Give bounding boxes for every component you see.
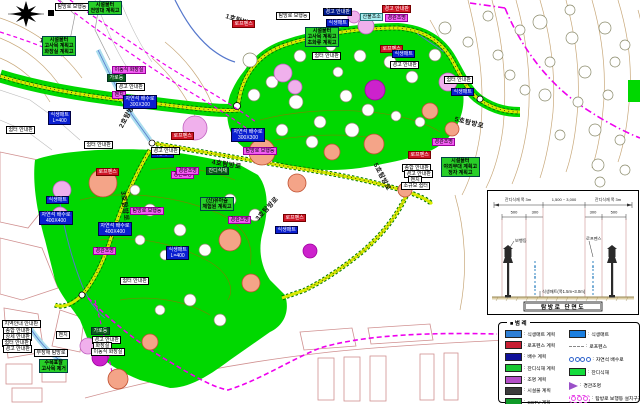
svg-text:식생매트(폭1.5m~3.0m): 식생매트(폭1.5m~3.0m)	[542, 288, 586, 295]
legend-separator: :	[524, 354, 525, 359]
legend-item-label: 식생매트 계획	[527, 331, 555, 338]
trail-name-label: 3호탐방로	[252, 194, 280, 223]
map-label: 식생매트	[326, 19, 349, 27]
legend-separator: :	[524, 388, 525, 393]
legend-swatch	[505, 353, 522, 361]
map-label: 이동식 화장실	[112, 66, 146, 74]
legend-symbol	[569, 395, 590, 403]
legend-panel: ■ 범 례 :식생매트 계획:로프펜스 계획:배수 계획:잔디식재 계획:조명 …	[498, 322, 640, 403]
legend-item-label: 탐방로 보행등 설치구간	[595, 395, 640, 402]
map-label: 탐방로 보행등	[243, 147, 277, 155]
trail-name-label: 5호탐방로	[372, 161, 395, 192]
svg-text:300: 300	[590, 210, 597, 215]
map-label: 로프펜스	[96, 168, 119, 176]
legend-symbol	[569, 346, 584, 347]
legend-plan-column: :식생매트 계획:로프펜스 계획:배수 계획:잔디식재 계획:조명 계획:시설물…	[505, 330, 565, 404]
legend-swatch	[505, 398, 522, 404]
svg-text:300: 300	[532, 210, 539, 215]
map-label: 가로등	[91, 327, 110, 335]
legend-separator: :	[524, 366, 525, 371]
map-label: 로프펜스	[283, 214, 306, 222]
map-label: 산불초소	[360, 13, 383, 21]
legend-swatch	[505, 364, 522, 372]
map-label: 로프펜스	[408, 151, 431, 159]
map-label: 무장애 탐방로	[34, 349, 68, 357]
map-label: 탐방로 보행등	[55, 3, 89, 11]
map-label: 로프펜스	[232, 20, 255, 28]
section-panel: 잔디식재 폭 3m 1,500 ~ 3,000 잔디식재 폭 3m 500 30…	[487, 190, 639, 315]
legend-item: :로프펜스	[569, 343, 635, 350]
legend-separator: :	[592, 396, 593, 401]
legend-separator: :	[580, 383, 581, 388]
legend-item-label: 시설물 계획	[527, 387, 550, 394]
legend-item: :경관조명	[569, 382, 635, 390]
legend-item: :잔디식재	[569, 368, 635, 376]
map-label: 쉼터 안내판	[312, 52, 341, 60]
svg-text:보행등: 보행등	[515, 237, 527, 243]
section-title: 탐방로 단면도	[541, 303, 585, 311]
legend-separator: :	[593, 357, 594, 362]
svg-text:500: 500	[611, 210, 618, 215]
legend-symbol	[569, 357, 591, 362]
legend-item-label: 잔디식재 계획	[527, 365, 555, 372]
legend-swatch	[505, 341, 522, 349]
map-label: 벤치	[56, 331, 70, 339]
map-label: 경관조명	[93, 247, 116, 255]
map-label: 식생매트 L=400	[166, 246, 189, 260]
legend-item-label: 자연석 배수로	[596, 356, 624, 363]
legend-item: :로프펜스 계획	[505, 341, 565, 349]
map-label: 쉼터 안내판	[120, 277, 149, 285]
map-label: 수목표찰 고사목 제거	[39, 359, 68, 373]
map-label: 경관조명	[385, 14, 408, 22]
map-label: 경고 안내판	[3, 345, 32, 353]
legend-item: :식생매트 계획	[505, 330, 565, 338]
map-label: 자연석 배수로 300X300	[123, 95, 157, 109]
map-label: 경관조명	[176, 167, 199, 175]
legend-item: :배수 계획	[505, 353, 565, 361]
legend-separator: :	[524, 377, 525, 382]
legend-item-label: 배수 계획	[527, 353, 546, 360]
legend-title: ■ 범 례	[507, 319, 530, 327]
legend-separator: :	[524, 343, 525, 348]
map-label: 자연석 배수로 400X400	[98, 222, 132, 236]
map-label: 경고 안내판	[390, 61, 419, 69]
map-label: 시설물터 고사목 계획고 화장실 계획고	[42, 36, 76, 56]
trail-name-label: 3호탐방로	[119, 190, 133, 221]
legend-swatch	[505, 387, 522, 395]
map-label: 잔디식재	[206, 167, 229, 175]
trail-name-label: 5호탐방로	[454, 113, 486, 130]
svg-text:로프펜스: 로프펜스	[586, 235, 602, 241]
svg-text:500: 500	[511, 210, 518, 215]
map-label: 탐방로 보행등	[276, 12, 310, 20]
legend-item: :자연석 배수로	[569, 356, 635, 363]
map-label: 시설물터 전망대 계획고	[88, 1, 122, 15]
legend-item: :잔디식재 계획	[505, 364, 565, 372]
legend-item: :탐방로 보행등 설치구간	[569, 395, 635, 403]
map-label: 식생매트 L=400	[48, 111, 71, 125]
legend-symbol	[569, 382, 578, 390]
map-label: 쉼터 안내판	[6, 126, 35, 134]
legend-item-label: 로프펜스 계획	[527, 342, 555, 349]
legend-swatch	[505, 376, 522, 384]
map-label: 자연석 배수로 300X300	[231, 128, 265, 142]
map-label: 식생매트	[451, 88, 474, 96]
legend-item-label: 식생매트	[591, 331, 609, 338]
map-label: 쉼터 안내판	[444, 76, 473, 84]
svg-text:잔디식재 폭 3m: 잔디식재 폭 3m	[505, 196, 532, 202]
legend-separator: :	[524, 400, 525, 404]
section-drawing: 잔디식재 폭 3m 1,500 ~ 3,000 잔디식재 폭 3m 500 30…	[488, 191, 636, 312]
legend-item-label: 로프펜스	[589, 343, 607, 350]
map-label: 식생매트	[275, 226, 298, 234]
map-label: 경고 안내판	[116, 83, 145, 91]
legend-item-label: 조명 계획	[527, 376, 546, 383]
legend-separator: :	[588, 370, 589, 375]
legend-separator: :	[524, 332, 525, 337]
map-label: 탐방로 보행등	[130, 207, 164, 215]
legend-item-label: 경관조명	[583, 382, 601, 389]
legend-symbol	[569, 368, 586, 376]
legend-item: :식생매트	[569, 330, 635, 338]
map-label: 가로등	[107, 74, 126, 82]
legend-item: :조명 계획	[505, 376, 565, 384]
map-label: 이동식 화장실	[91, 348, 125, 356]
svg-text:1,500 ~ 3,000: 1,500 ~ 3,000	[552, 197, 577, 202]
map-label: 시설물터 고사목 계획고 초화류 계획고	[305, 27, 339, 47]
legend-item: :CCTV 계획	[505, 398, 565, 404]
map-label: 경관조명	[228, 216, 251, 224]
legend-item: :시설물 계획	[505, 387, 565, 395]
svg-text:잔디식재 폭 3m: 잔디식재 폭 3m	[595, 196, 622, 202]
legend-symbol-column: :식생매트:로프펜스:자연석 배수로:잔디식재:경관조명:탐방로 보행등 설치구…	[569, 330, 635, 404]
legend-symbol	[569, 330, 586, 338]
map-label: 소규모 쉼터	[401, 182, 430, 190]
map-label: 시설물터 야외무대 계획고 정자 계획고	[441, 157, 480, 177]
map-label: 로프펜스	[171, 132, 194, 140]
map-label: 자연석 배수로 400X400	[39, 211, 73, 225]
legend-item-label: CCTV 계획	[527, 399, 550, 404]
map-label: 식생매트	[392, 50, 415, 58]
site-plan-page: 탐방로 보행등시설물터 전망대 계획고시설물터 고사목 계획고 화장실 계획고탐…	[0, 0, 640, 404]
legend-separator: :	[586, 344, 587, 349]
legend-swatch	[505, 330, 522, 338]
map-label: 식생매트	[46, 196, 69, 204]
map-label: 경고 안내판	[323, 8, 352, 16]
legend-item-label: 잔디식재	[591, 369, 609, 376]
legend-separator: :	[588, 332, 589, 337]
map-label: 쉼터 안내판	[84, 141, 113, 149]
map-label: (신)유아숲 체험원 계획고	[200, 197, 234, 211]
map-label: 경관조명	[432, 138, 455, 146]
map-label: 경고 안내판	[151, 147, 180, 155]
map-label: 경고 안내판	[382, 5, 411, 13]
